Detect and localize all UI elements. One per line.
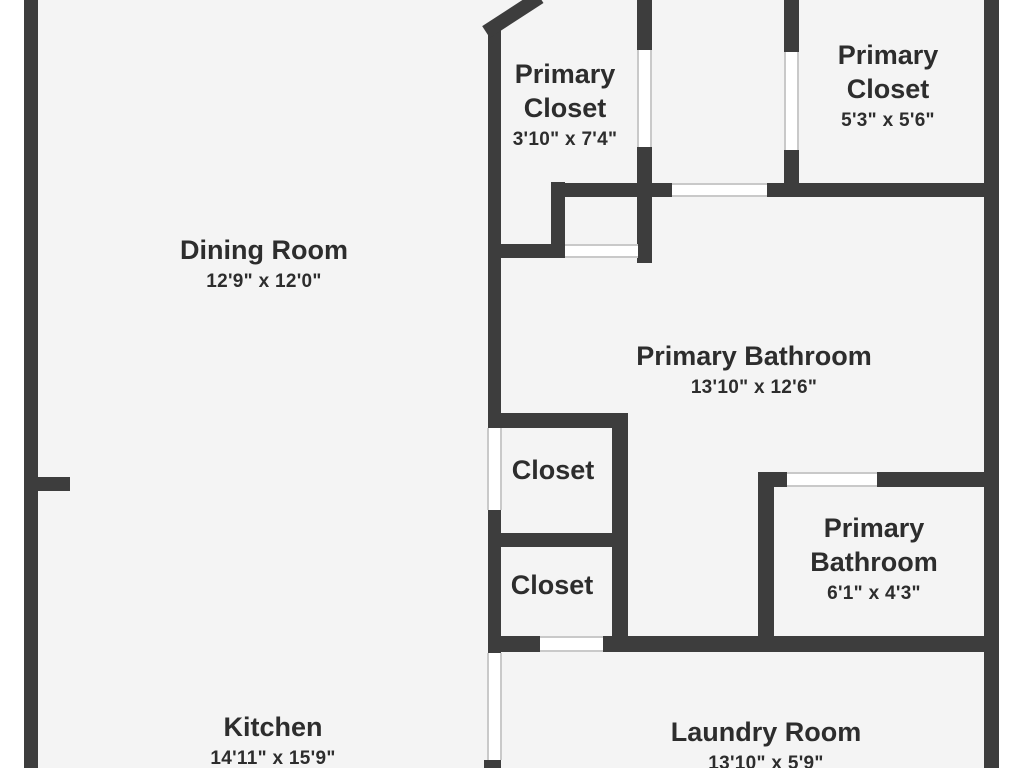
door-opening-bathroom-small: [787, 472, 877, 487]
wall-stub-left: [24, 477, 70, 491]
wall-closet-upper-top: [488, 413, 628, 428]
wall-bottom-left: [488, 636, 540, 652]
floor-plan: Dining Room 12'9" x 12'0" Primary Closet…: [0, 0, 1024, 768]
room-dims-kitchen: 14'11" x 15'9": [210, 747, 335, 768]
door-opening-hall-bathroom: [672, 183, 767, 197]
room-label-laundry: Laundry Room 13'10" x 5'9": [671, 715, 862, 768]
room-label-kitchen: Kitchen 14'11" x 15'9": [210, 710, 335, 768]
wall-closet-right-left-upper: [784, 0, 799, 52]
room-label-primary-closet-left: Primary Closet 3'10" x 7'4": [499, 57, 631, 152]
wall-center-lower: [488, 510, 501, 653]
wall-vestibule-bottom: [488, 244, 565, 258]
room-label-primary-bathroom-small: Primary Bathroom 6'1" x 4'3": [798, 511, 950, 606]
wall-center-bottom-stub: [484, 760, 501, 768]
wall-bathroom-small-left: [758, 472, 774, 652]
wall-bottom-right: [603, 636, 999, 652]
room-name-laundry: Laundry Room: [671, 715, 862, 749]
room-dims-primary-closet-left: 3'10" x 7'4": [499, 128, 631, 152]
door-opening-vestibule: [565, 244, 638, 258]
room-dims-primary-closet-right: 5'3" x 5'6": [822, 109, 954, 133]
room-name-primary-bathroom: Primary Bathroom: [636, 339, 872, 373]
room-label-dining: Dining Room 12'9" x 12'0": [180, 233, 348, 294]
wall-exterior-right: [984, 0, 999, 768]
door-opening-closet-lower: [540, 636, 603, 652]
wall-closet-left-right-lower: [637, 147, 652, 263]
wall-hall-bottom-right: [767, 183, 984, 197]
room-label-primary-bathroom: Primary Bathroom 13'10" x 12'6": [636, 339, 872, 400]
wall-bathroom-small-top-left: [758, 472, 787, 487]
room-name-primary-bathroom-small: Primary Bathroom: [798, 511, 950, 579]
wall-closet-divider: [488, 533, 628, 547]
room-dims-dining: 12'9" x 12'0": [180, 270, 348, 294]
room-name-closet-upper: Closet: [512, 453, 595, 487]
room-name-dining: Dining Room: [180, 233, 348, 267]
door-opening-closet-left: [637, 50, 652, 147]
room-dims-primary-bathroom-small: 6'1" x 4'3": [798, 582, 950, 606]
room-name-primary-closet-right: Primary Closet: [822, 38, 954, 106]
wall-hall-bottom-left: [551, 183, 672, 197]
wall-closet-left-right-upper: [637, 0, 652, 50]
room-label-primary-closet-right: Primary Closet 5'3" x 5'6": [822, 38, 954, 133]
room-name-kitchen: Kitchen: [210, 710, 335, 744]
wall-exterior-left: [24, 0, 38, 768]
room-name-closet-lower: Closet: [511, 568, 594, 602]
wall-bathroom-small-top-right: [877, 472, 999, 487]
room-name-primary-closet-left: Primary Closet: [499, 57, 631, 125]
door-opening-closet-upper: [487, 428, 502, 510]
room-label-closet-lower: Closet: [511, 568, 594, 602]
door-opening-closet-right: [784, 52, 799, 150]
room-dims-laundry: 13'10" x 5'9": [671, 752, 862, 768]
passage-opening-kitchen-laundry: [487, 653, 502, 760]
room-dims-primary-bathroom: 13'10" x 12'6": [636, 376, 872, 400]
room-label-closet-upper: Closet: [512, 453, 595, 487]
